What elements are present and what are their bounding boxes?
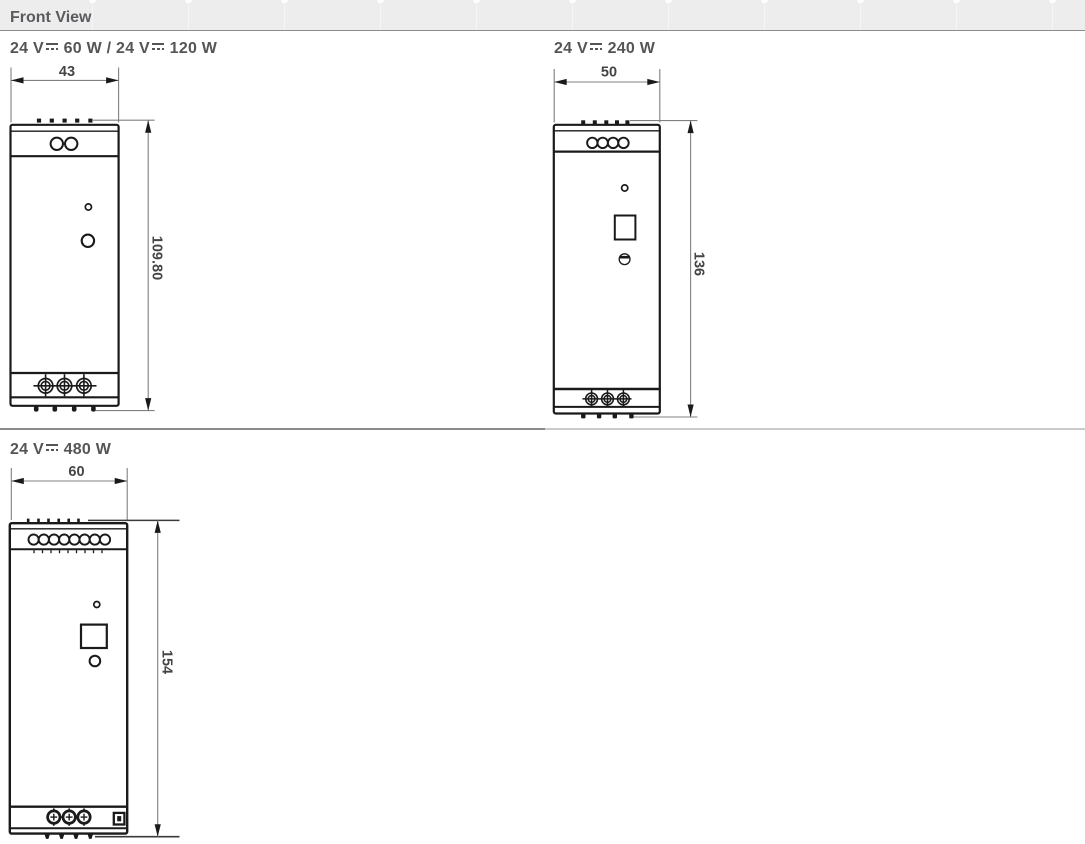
svg-text:109.80: 109.80 bbox=[149, 236, 165, 280]
svg-text:60: 60 bbox=[68, 464, 84, 480]
svg-text:136: 136 bbox=[691, 252, 707, 276]
svg-text:50: 50 bbox=[601, 65, 617, 81]
svg-text:154: 154 bbox=[159, 650, 175, 674]
svg-text:43: 43 bbox=[59, 64, 75, 80]
